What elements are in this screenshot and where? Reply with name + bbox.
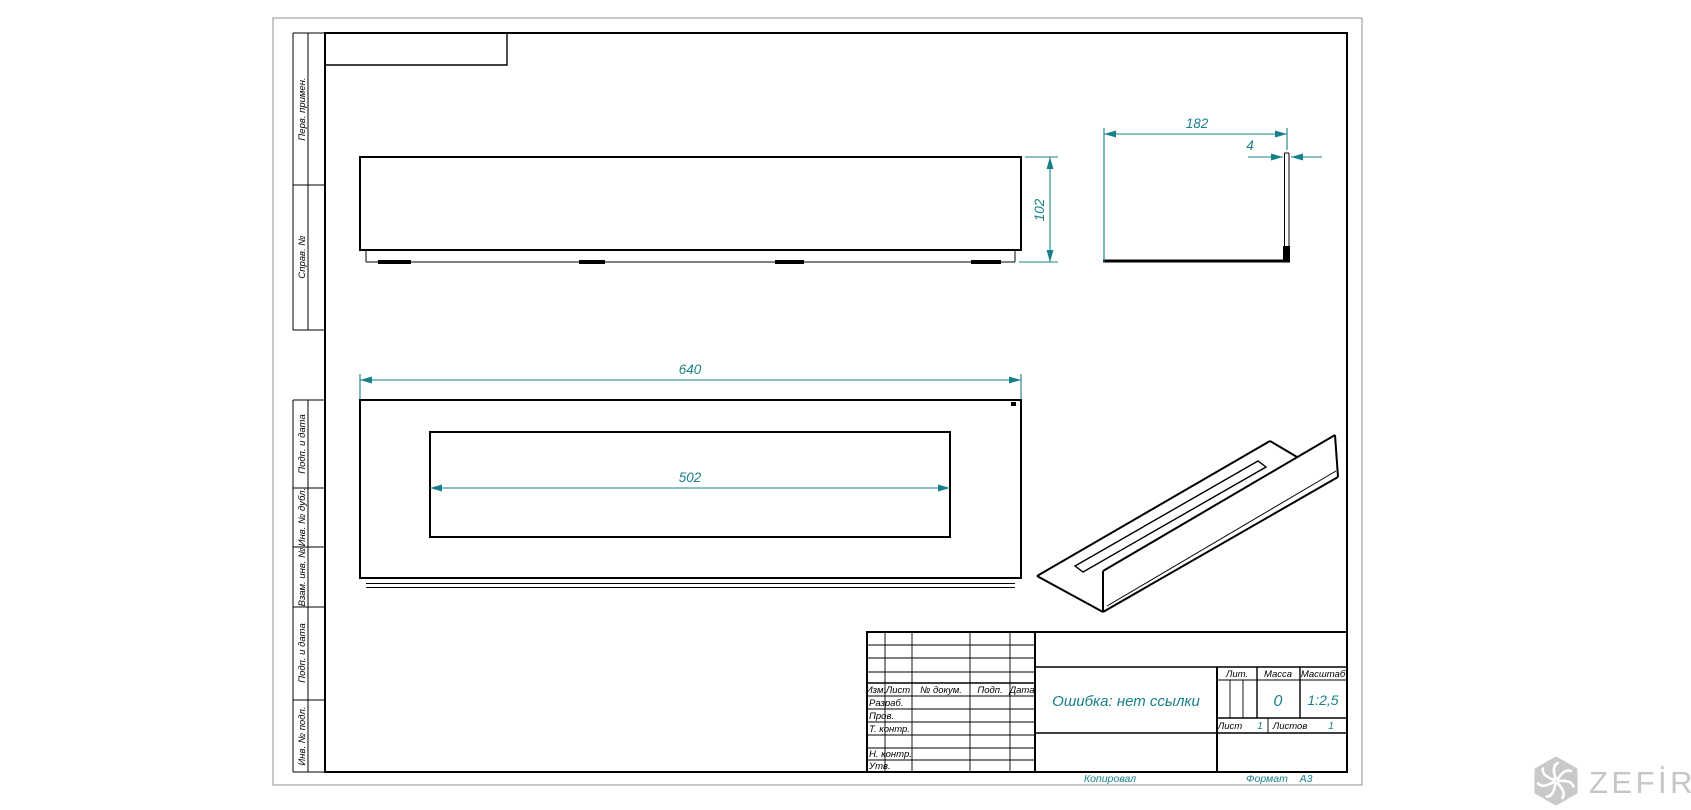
margin-label-podp-data-2: Подп. и дата [297,623,308,682]
zefire-logo: ZEFİRE [1536,758,1691,804]
dim-text-102: 102 [1032,198,1047,221]
zefire-logo-icon [1536,758,1576,804]
tb-lit-label: Лит. [1225,669,1248,680]
tb-row-utv: Утв. [868,761,891,772]
dim-text-640: 640 [679,362,702,377]
drawing-canvas: Перв. примен. Справ. № Подп. и дата Инв.… [0,0,1691,810]
tb-mass-label: Масса [1264,669,1292,680]
tb-scale-label: Масштаб [1301,669,1346,680]
dim-text-502: 502 [679,470,702,485]
gost-drawing-sheet: Перв. примен. Справ. № Подп. и дата Инв.… [0,0,1691,810]
tb-header-podp: Подп. [977,685,1002,696]
tb-header-dokum: № докум. [920,685,962,696]
tb-row-tkontr: Т. контр. [869,724,910,735]
kopiroval-label: Копировал [1084,773,1136,785]
sheet-edge [273,18,1362,785]
tb-header-izm: Изм. [866,685,886,696]
dim-text-4: 4 [1246,138,1254,153]
zefire-logo-text: ZEFİRE [1589,765,1691,800]
tb-row-nkontr: Н. контр. [869,749,912,760]
document-title: Ошибка: нет ссылки [1052,693,1200,710]
tb-row-razrab: Разраб. [869,698,903,709]
tb-scale-value: 1:2,5 [1307,692,1338,708]
margin-label-sprav-no: Справ. № [297,235,308,278]
tb-row-prov: Пров. [869,711,894,722]
margin-label-podp-data-1: Подп. и дата [297,414,308,473]
orientation-dot [1011,402,1016,406]
margin-label-inv-dubl: Инв. № дубл. [297,488,308,546]
tb-list-label: Лист [1217,721,1243,732]
dim-text-182: 182 [1186,116,1209,131]
tb-list-value: 1 [1257,721,1263,732]
format-value: А3 [1299,773,1313,785]
tb-header-data: Дата [1008,685,1034,696]
margin-label-perv-primen: Перв. примен. [297,77,308,140]
tb-listov-label: Листов [1272,721,1308,732]
margin-label-inv-podl: Инв. № подл. [297,707,308,766]
format-label: Формат [1246,773,1288,785]
tb-listov-value: 1 [1328,721,1334,732]
margin-label-vzam-inv: Взам. инв. № [297,548,308,607]
tb-mass-value: 0 [1274,693,1283,710]
tb-header-list: Лист [885,685,911,696]
